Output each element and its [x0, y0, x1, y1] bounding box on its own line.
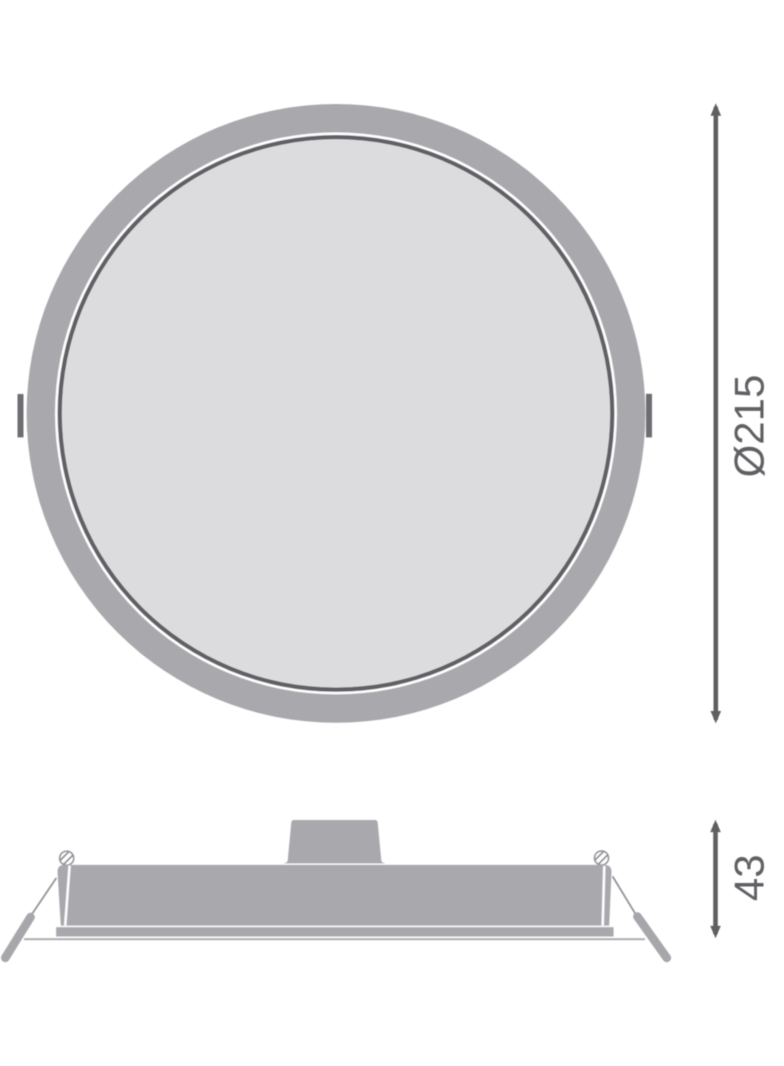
svg-text:Ø215: Ø215 — [726, 375, 773, 478]
svg-text:43: 43 — [726, 854, 773, 901]
